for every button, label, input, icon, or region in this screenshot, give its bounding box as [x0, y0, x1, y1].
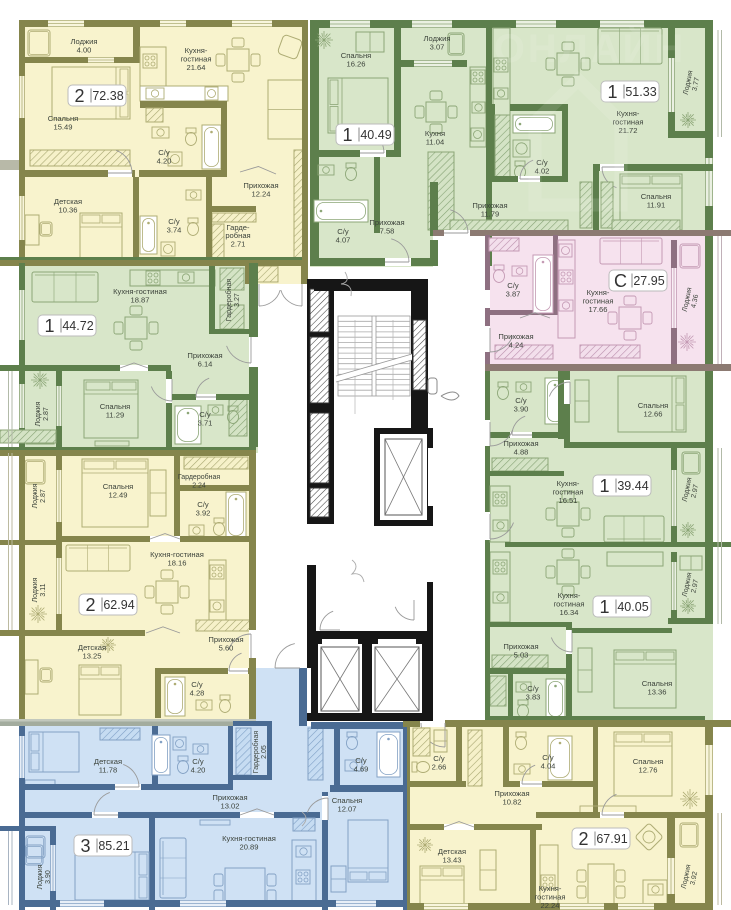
svg-text:72.38: 72.38: [92, 89, 123, 103]
svg-text:85.21: 85.21: [98, 839, 129, 853]
svg-text:С/у3.74: С/у3.74: [167, 217, 182, 235]
svg-text:1: 1: [599, 476, 609, 496]
svg-text:С/у4.20: С/у4.20: [157, 148, 172, 166]
svg-text:51.33: 51.33: [625, 85, 656, 99]
svg-text:Кухня11.04: Кухня11.04: [425, 129, 445, 147]
svg-text:2: 2: [74, 86, 84, 106]
svg-text:С/у2.66: С/у2.66: [432, 754, 447, 772]
svg-text:39.44: 39.44: [617, 479, 648, 493]
svg-text:27.95: 27.95: [633, 274, 664, 288]
svg-text:62.94: 62.94: [103, 598, 134, 612]
svg-text:44.72: 44.72: [62, 319, 93, 333]
svg-text:40.05: 40.05: [617, 600, 648, 614]
svg-text:1: 1: [607, 82, 617, 102]
svg-text:С/у4.28: С/у4.28: [190, 680, 205, 698]
svg-text:С/у4.07: С/у4.07: [336, 227, 351, 245]
svg-text:С/у3.83: С/у3.83: [526, 684, 541, 702]
svg-text:1: 1: [599, 597, 609, 617]
svg-text:1: 1: [44, 316, 54, 336]
svg-text:ОНЛАЙН: ОНЛАЙН: [494, 25, 687, 71]
svg-text:C: C: [614, 271, 627, 291]
svg-text:2: 2: [85, 595, 95, 615]
svg-text:1: 1: [342, 125, 352, 145]
svg-text:67.91: 67.91: [596, 832, 627, 846]
svg-text:3: 3: [80, 836, 90, 856]
svg-text:40.49: 40.49: [360, 128, 391, 142]
svg-text:С/у3.92: С/у3.92: [196, 500, 211, 518]
svg-text:С/у3.90: С/у3.90: [514, 396, 529, 414]
svg-text:С/у4.04: С/у4.04: [541, 753, 556, 771]
svg-text:С/у3.87: С/у3.87: [506, 281, 521, 299]
svg-text:2: 2: [578, 829, 588, 849]
svg-text:С/у4.69: С/у4.69: [354, 756, 369, 774]
svg-text:С/у4.20: С/у4.20: [191, 757, 206, 775]
svg-text:С/у3.71: С/у3.71: [198, 410, 213, 428]
